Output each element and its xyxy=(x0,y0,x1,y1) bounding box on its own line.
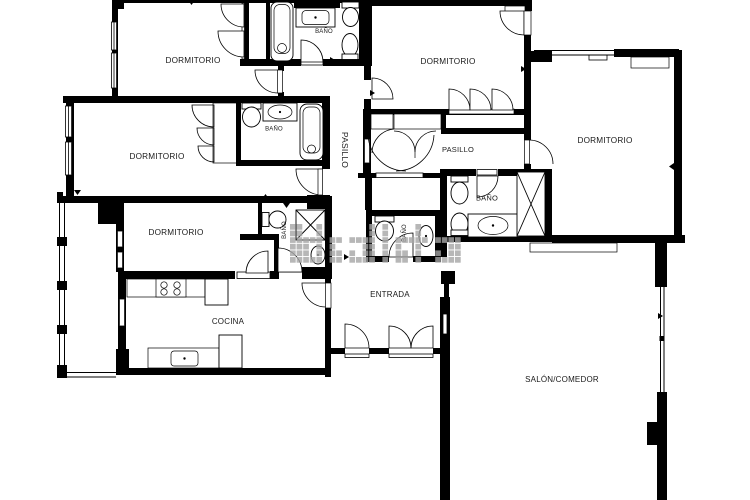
svg-text:PASILLO: PASILLO xyxy=(340,132,350,168)
svg-text:BAÑO: BAÑO xyxy=(281,221,288,239)
svg-text:BAÑO: BAÑO xyxy=(315,28,333,35)
svg-text:DORMITORIO: DORMITORIO xyxy=(148,228,203,237)
svg-text:DORMITORIO: DORMITORIO xyxy=(420,57,475,66)
svg-text:DORMITORIO: DORMITORIO xyxy=(165,56,220,65)
svg-text:COCINA: COCINA xyxy=(212,317,245,326)
svg-text:PASILLO: PASILLO xyxy=(442,145,474,154)
svg-text:ENTRADA: ENTRADA xyxy=(370,290,410,299)
svg-text:BAÑO: BAÑO xyxy=(476,194,498,203)
svg-text:DORMITORIO: DORMITORIO xyxy=(129,152,184,161)
svg-text:SALÓN/COMEDOR: SALÓN/COMEDOR xyxy=(525,375,599,384)
svg-text:DORMITORIO: DORMITORIO xyxy=(577,136,632,145)
svg-text:BAÑO: BAÑO xyxy=(265,126,283,133)
